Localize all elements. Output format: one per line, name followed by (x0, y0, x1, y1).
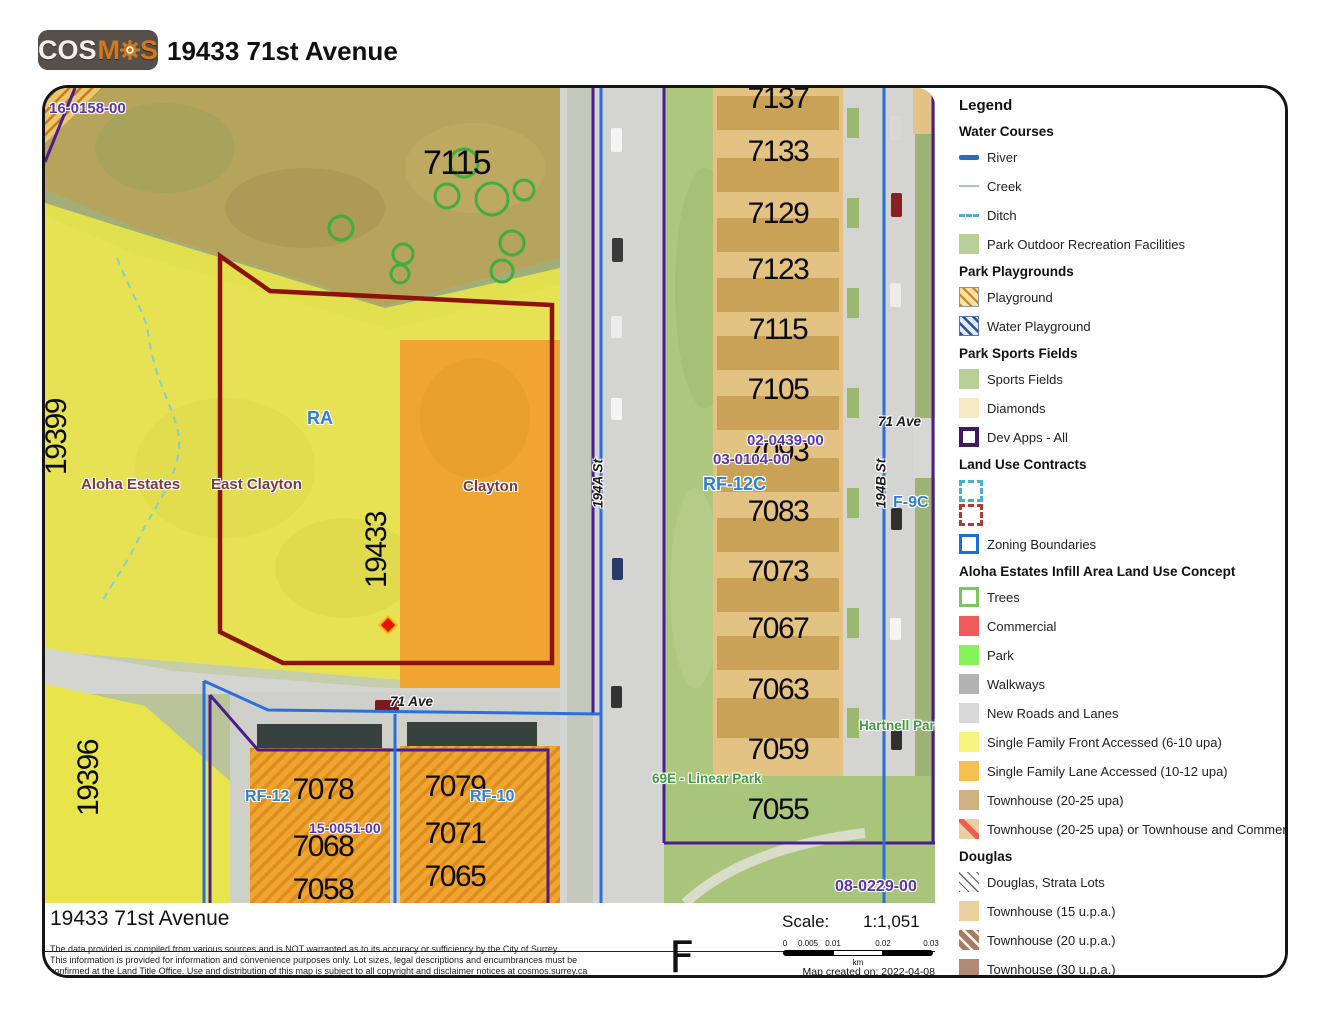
legend-item-water-playground: Water Playground (959, 316, 1285, 336)
zone-label-ra: RA (307, 408, 333, 429)
legend-item-park-outdoor: Park Outdoor Recreation Facilities (959, 234, 1285, 254)
parcel-label-7129: 7129 (743, 197, 813, 231)
scale-value: 1:1,051 (863, 912, 920, 932)
address-label-19396: 19396 (72, 718, 106, 838)
legend-item-sf-lane: Single Family Lane Accessed (10-12 upa) (959, 761, 1285, 781)
scalebar-tick-003: 0.03 (923, 939, 939, 948)
app-header: COSM S 19433 71st Avenue (0, 0, 1320, 85)
legend-item-townhouse-30: Townhouse (30 u.p.a.) (959, 959, 1285, 975)
legend-section-water-courses: Water Courses (959, 124, 1285, 139)
parcel-label-7105: 7105 (743, 373, 813, 407)
place-label-clayton: Clayton (463, 478, 518, 495)
page-title: 19433 71st Avenue (167, 36, 398, 67)
cosmos-logo: COSM S (38, 30, 158, 70)
zone-label-rf10: RF-10 (470, 788, 514, 806)
park-outdoor-swatch (959, 234, 979, 254)
parcel-label-7123: 7123 (743, 253, 813, 287)
legend-item-park: Park (959, 645, 1285, 665)
legend-title: Legend (959, 97, 1285, 114)
legend-section-park-playgrounds: Park Playgrounds (959, 264, 1285, 279)
footer-address-title: 19433 71st Avenue (50, 907, 229, 931)
gear-icon (120, 37, 140, 63)
sports-fields-swatch (959, 369, 979, 389)
walkways-swatch (959, 674, 979, 694)
sf-lane-swatch (959, 761, 979, 781)
legend-item-walkways: Walkways (959, 674, 1285, 694)
file-label-03-0104-00: 03-0104-00 (713, 451, 790, 468)
place-label-aloha-estates: Aloha Estates (81, 476, 180, 493)
trees-swatch (959, 587, 979, 607)
townhouse-2025-swatch (959, 790, 979, 810)
new-roads-swatch (959, 703, 979, 723)
scale-bar: 0 0.005 0.01 0.02 0.03 km Map created on… (783, 939, 935, 975)
street-label-194a: 194A St (591, 439, 606, 529)
douglas-strata-swatch (959, 872, 979, 892)
parcel-label-7083: 7083 (743, 495, 813, 529)
legend-item-zoning-boundaries: Zoning Boundaries (959, 534, 1285, 554)
parcel-label-7058: 7058 (273, 873, 373, 903)
legend-item-diamonds: Diamonds (959, 398, 1285, 418)
legend-item-trees: Trees (959, 587, 1285, 607)
diamonds-swatch (959, 398, 979, 418)
north-arrow-icon: F (669, 932, 694, 978)
street-label-194b: 194B St (874, 439, 889, 529)
parcel-label-7115: 7115 (743, 313, 813, 347)
scalebar-tick-0: 0 (783, 939, 787, 948)
parcel-label-7065: 7065 (405, 860, 505, 894)
legend-panel: Legend Water Courses River Creek Ditch P… (935, 88, 1285, 975)
legend-item-sports-fields: Sports Fields (959, 369, 1285, 389)
scalebar-tick-002: 0.02 (875, 939, 891, 948)
zoning-boundaries-swatch (959, 534, 979, 554)
playground-swatch (959, 287, 979, 307)
dev-apps-swatch (959, 427, 979, 447)
water-playground-swatch (959, 316, 979, 336)
commercial-swatch (959, 616, 979, 636)
address-label-19433: 19433 (360, 490, 394, 610)
file-label-08-0229-00: 08-0229-00 (835, 878, 917, 896)
scalebar-segments (783, 950, 933, 956)
legend-item-river: River (959, 147, 1285, 167)
file-label-02-0439-00: 02-0439-00 (747, 432, 824, 449)
address-label-19399: 19399 (45, 387, 74, 487)
scale-label: Scale: (782, 912, 829, 932)
map-created-date: Map created on: 2022-04-08 (802, 966, 935, 978)
zone-label-rf12: RF-12 (245, 788, 289, 806)
legend-item-new-roads: New Roads and Lanes (959, 703, 1285, 723)
zone-label-rf12c: RF-12C (703, 474, 766, 495)
logo-text-s: S (140, 37, 158, 64)
legend-item-creek: Creek (959, 176, 1285, 196)
legend-section-aloha-concept: Aloha Estates Infill Area Land Use Conce… (959, 564, 1285, 579)
file-label-16-0158-00: 16-0158-00 (49, 100, 126, 117)
parcel-label-7115-large: 7115 (423, 144, 490, 183)
ditch-line-swatch (959, 205, 979, 225)
townhouse-commercial-swatch (959, 819, 979, 839)
legend-item-townhouse-20: Townhouse (20 u.p.a.) (959, 930, 1285, 950)
legend-section-park-sports-fields: Park Sports Fields (959, 346, 1285, 361)
disclaimer-text: The data provided is compiled from vario… (50, 944, 610, 977)
legend-item-ditch: Ditch (959, 205, 1285, 225)
legend-section-douglas: Douglas (959, 849, 1285, 864)
parcel-label-7071: 7071 (405, 817, 505, 851)
legend-section-land-use-contracts: Land Use Contracts (959, 457, 1285, 472)
creek-line-swatch (959, 176, 979, 196)
map-canvas: 16-0158-00 7115 19399 Aloha Estates East… (45, 88, 935, 903)
river-line-swatch (959, 147, 979, 167)
logo-text-m: M (98, 37, 121, 64)
parcel-label-7055: 7055 (743, 793, 813, 827)
map-footer: 19433 71st Avenue Scale: 1:1,051 The dat… (45, 903, 935, 975)
legend-item-playground: Playground (959, 287, 1285, 307)
legend-item-dev-apps: Dev Apps - All (959, 427, 1285, 447)
scalebar-tick-001: 0.01 (825, 939, 841, 948)
park-swatch (959, 645, 979, 665)
legend-item-townhouse-2025: Townhouse (20-25 upa) (959, 790, 1285, 810)
map-sheet-frame: 16-0158-00 7115 19399 Aloha Estates East… (42, 85, 1288, 978)
logo-text-cos: COS (38, 37, 97, 64)
townhouse-15-swatch (959, 901, 979, 921)
parcel-label-7133: 7133 (743, 135, 813, 169)
parcel-label-7137: 7137 (743, 88, 813, 116)
street-label-71ave-right: 71 Ave (878, 414, 921, 429)
sf-front-swatch (959, 732, 979, 752)
parcel-label-7063: 7063 (743, 673, 813, 707)
townhouse-30-swatch (959, 959, 979, 975)
legend-item-douglas-strata: Douglas, Strata Lots (959, 872, 1285, 892)
street-label-71ave-bottom: 71 Ave (390, 694, 433, 709)
parcel-label-7068: 7068 (273, 830, 373, 864)
parcel-label-7067: 7067 (743, 612, 813, 646)
park-label-69e-linear: 69E - Linear Park (652, 771, 762, 786)
parcel-label-7059: 7059 (743, 733, 813, 767)
luc-teal-swatch (959, 480, 983, 502)
parcel-label-7073: 7073 (743, 555, 813, 589)
legend-item-townhouse-commercial: Townhouse (20-25 upa) or Townhouse and C… (959, 819, 1285, 839)
legend-item-townhouse-15: Townhouse (15 u.p.a.) (959, 901, 1285, 921)
zone-label-f9c: F-9C (893, 494, 929, 512)
park-label-hartnell: Hartnell Park (859, 718, 935, 733)
scalebar-tick-0005: 0.005 (798, 939, 818, 948)
luc-red-swatch (959, 504, 983, 526)
legend-item-commercial: Commercial (959, 616, 1285, 636)
townhouse-20-swatch (959, 930, 979, 950)
legend-item-sf-front: Single Family Front Accessed (6-10 upa) (959, 732, 1285, 752)
legend-item-luc-swatches (959, 480, 1285, 526)
place-label-east-clayton: East Clayton (211, 476, 302, 493)
